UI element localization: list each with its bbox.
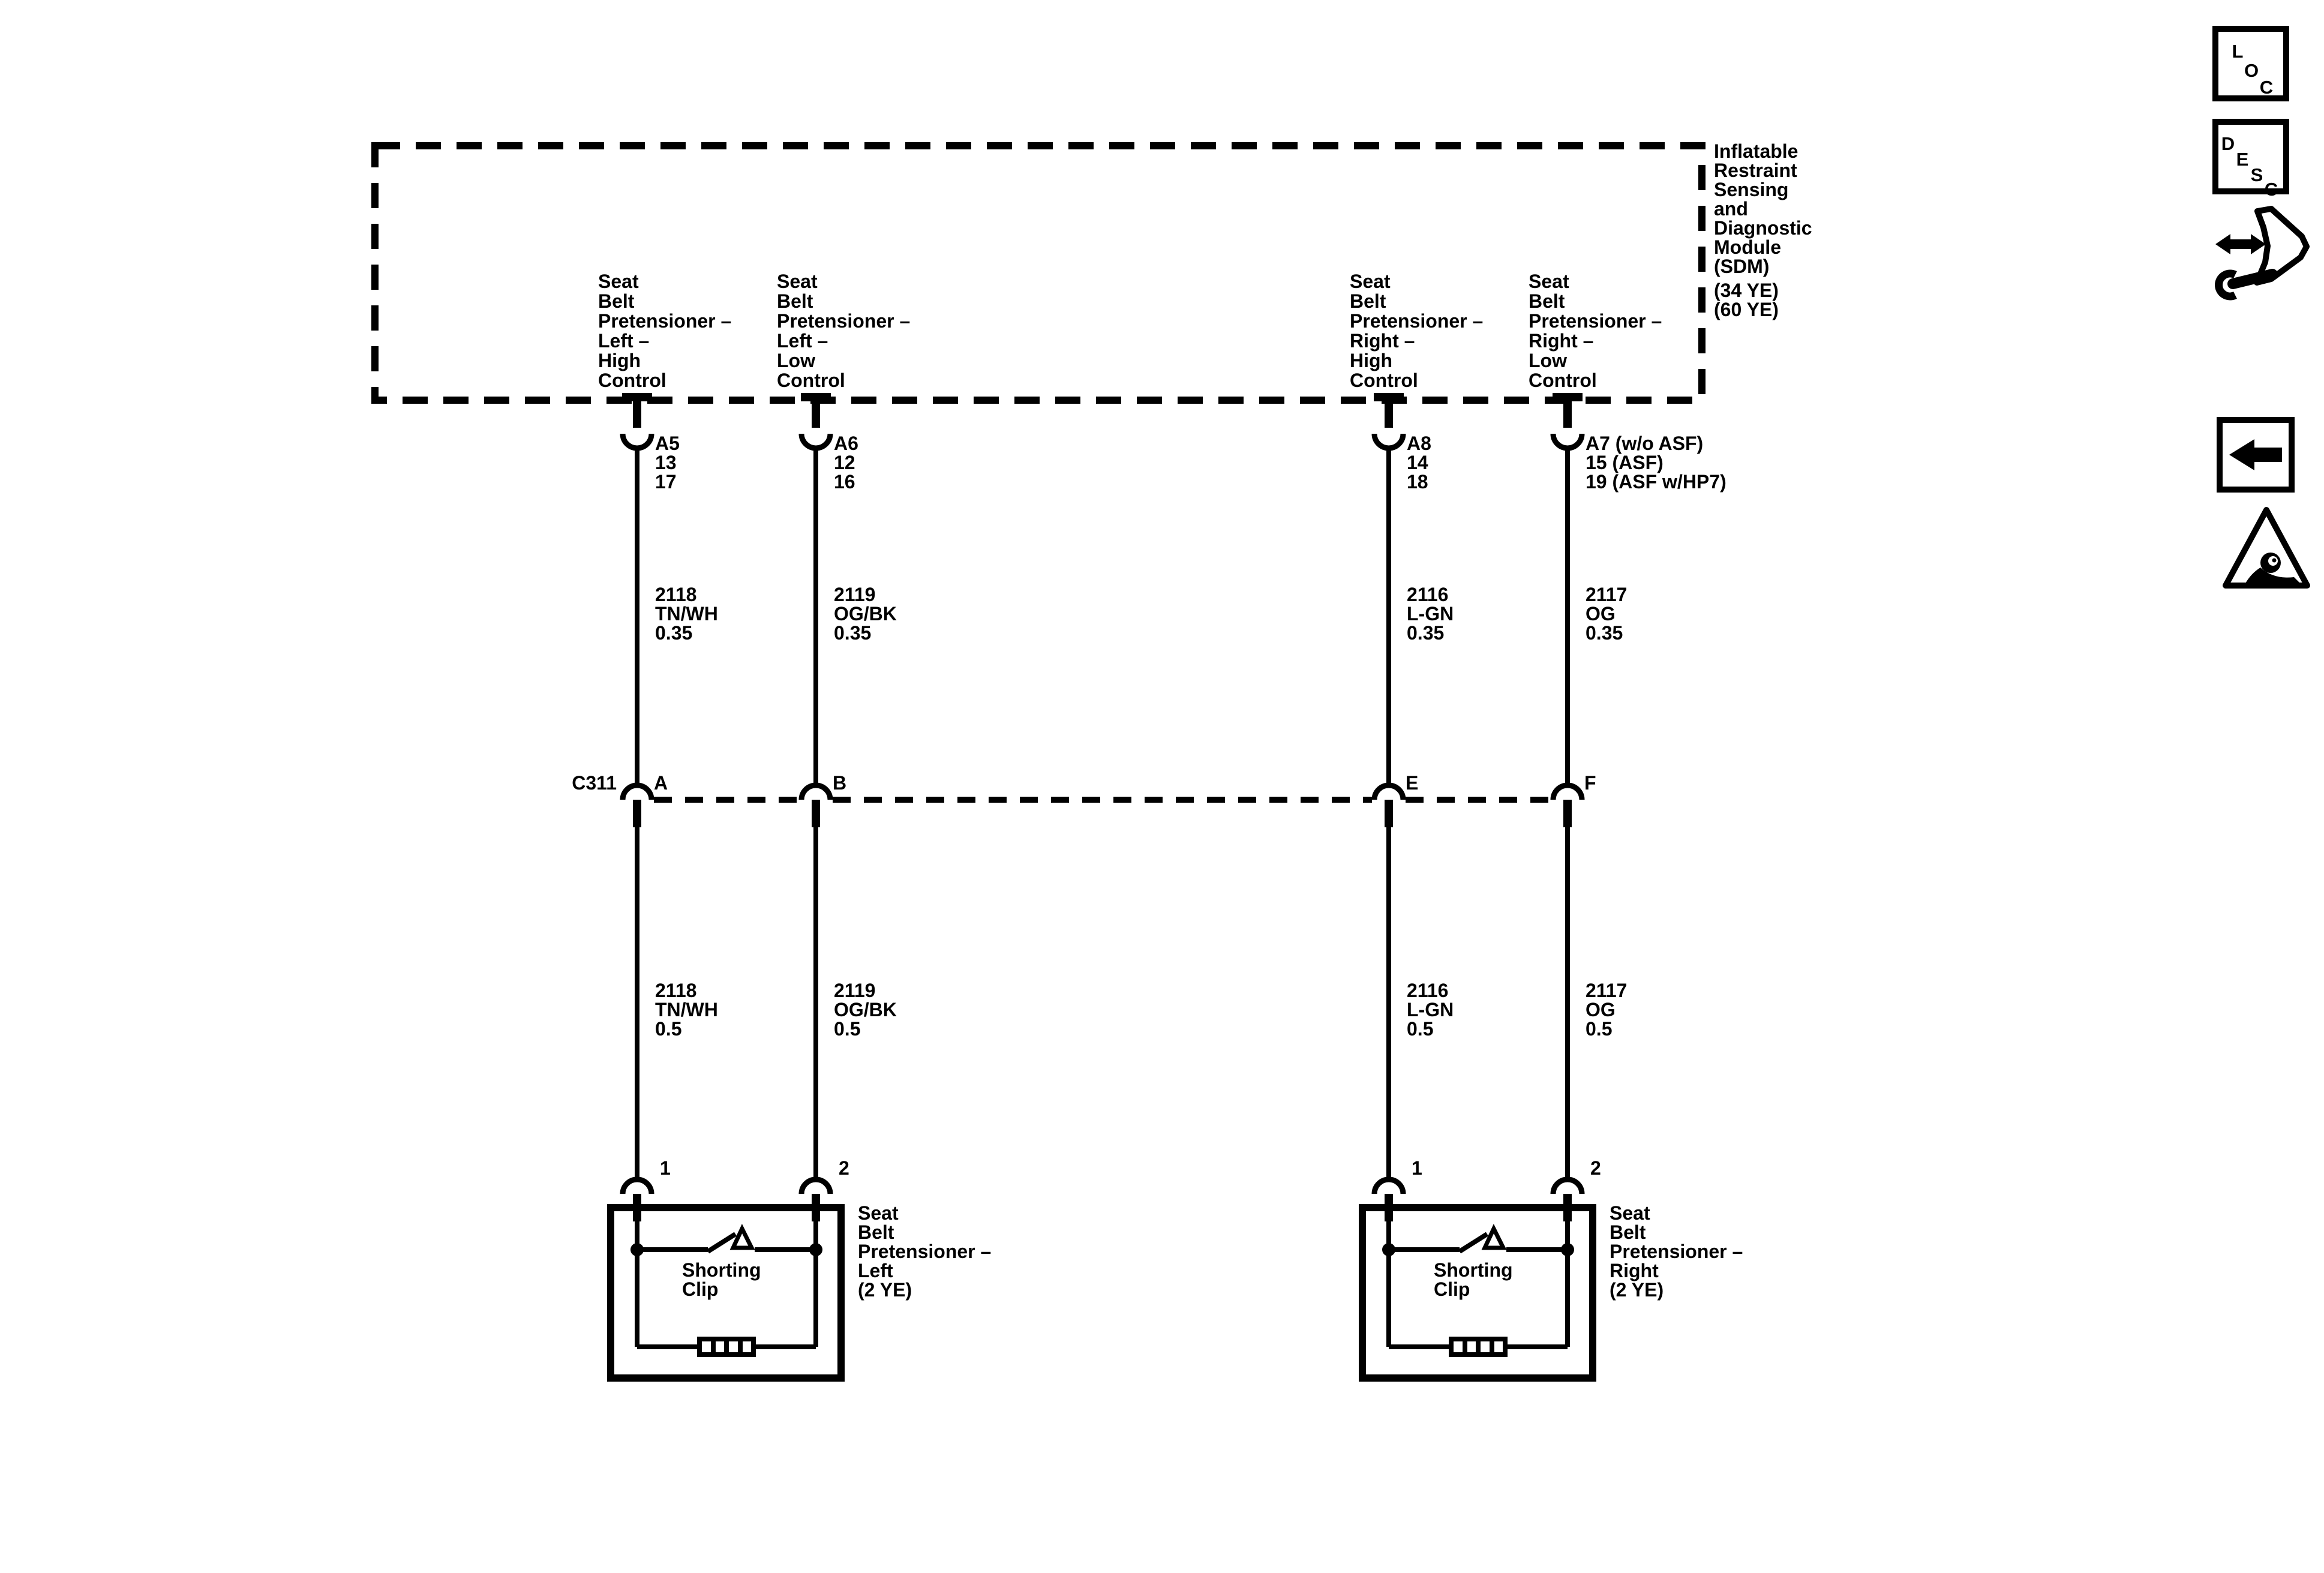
label-line: Seat (1529, 271, 1569, 292)
sdm-control-label-left-low: Seat Belt Pretensioner – Left – Low Cont… (777, 271, 910, 391)
component-terminal-icon (623, 1179, 651, 1194)
wire-color: OG (1586, 999, 1616, 1020)
circuit-number: 2117 (1586, 980, 1627, 1001)
label-line: High (1350, 350, 1392, 371)
pin-label: 19 (ASF w/HP7) (1586, 471, 1727, 493)
module-label-line: Module (1714, 236, 1781, 258)
module-label-line: (SDM) (1714, 256, 1769, 277)
sdm-pin-stub (1563, 393, 1572, 428)
wire-4-sbp-right-low (1553, 393, 1583, 1221)
c311-pin-stub (633, 800, 641, 827)
desc-letter: C (2265, 179, 2278, 200)
wire-size: 0.5 (1586, 1018, 1612, 1040)
wire-color: L-GN (1407, 999, 1454, 1020)
pin-label: 14 (1407, 452, 1428, 473)
switch-actuator-icon (1485, 1229, 1503, 1248)
loc-letter: C (2260, 77, 2273, 98)
circuit-number: 2116 (1407, 980, 1448, 1001)
desc-letter: E (2236, 149, 2249, 170)
c311-terminal-icon (801, 785, 830, 800)
pretensioner-right-box: Shorting Clip (1362, 1208, 1593, 1378)
sdm-pin-stub (1385, 393, 1393, 428)
connector-name: C311 (572, 772, 617, 794)
pretensioner-left-box: Shorting Clip (611, 1208, 841, 1378)
label-line: Seat (598, 271, 639, 292)
wire-color: OG (1586, 603, 1616, 625)
label-line: Belt (1529, 290, 1565, 312)
module-label-line: Diagnostic (1714, 217, 1812, 239)
pin-label: 13 (655, 452, 677, 473)
circuit-number: 2117 (1586, 584, 1627, 605)
label-line: Belt (777, 290, 813, 312)
pin-label: 16 (834, 471, 855, 493)
upper-wire-labels: 2118 TN/WH 0.35 2119 OG/BK 0.35 2116 L-G… (655, 584, 1627, 644)
repair-arrow-wrench-button[interactable] (2215, 209, 2307, 296)
wire-size: 0.5 (1407, 1018, 1433, 1040)
module-label-line: Sensing (1714, 179, 1788, 200)
pin-number: 2 (839, 1157, 849, 1179)
circuit-number: 2116 (1407, 584, 1448, 605)
loc-button[interactable]: L O C (2215, 29, 2286, 98)
pin-label: A8 (1407, 433, 1431, 454)
loc-letter: O (2244, 60, 2259, 81)
label-line: Right – (1529, 330, 1593, 352)
label-line: Left (858, 1260, 893, 1281)
switch-actuator-icon (733, 1229, 752, 1248)
wire-size: 0.35 (1586, 622, 1623, 644)
component-inner-label: Clip (1434, 1278, 1470, 1300)
sdm-pin-stub (812, 393, 820, 428)
wire-color: TN/WH (655, 603, 718, 625)
c311-pin-stub (1385, 800, 1393, 827)
female-terminal-icon (623, 434, 651, 448)
label-line: Control (1350, 370, 1418, 391)
module-label-line: (34 YE) (1714, 280, 1779, 301)
wire-size: 0.35 (655, 622, 692, 644)
label-line: High (598, 350, 641, 371)
label-line: Control (1529, 370, 1597, 391)
loc-letter: L (2232, 41, 2244, 62)
pin-label: 18 (1407, 471, 1428, 493)
label-line: Belt (858, 1221, 894, 1243)
label-line: Seat (1610, 1202, 1650, 1224)
female-terminal-icon (1553, 434, 1582, 448)
c311-terminal-icon (1374, 785, 1403, 800)
c311-pin-stub (812, 800, 820, 827)
pin-label: 17 (655, 471, 677, 493)
desc-letter: S (2251, 164, 2263, 185)
label-line: Seat (777, 271, 818, 292)
label-line: Left – (777, 330, 828, 352)
circuit-number: 2119 (834, 584, 875, 605)
label-line: Belt (1350, 290, 1386, 312)
label-line: Control (777, 370, 845, 391)
pin-label: A5 (655, 433, 680, 454)
wire-2-sbp-left-low (801, 393, 831, 1221)
connector-pin-letter: B (833, 772, 846, 794)
sdm-control-label-right-low: Seat Belt Pretensioner – Right – Low Con… (1529, 271, 1662, 391)
label-line: Pretensioner – (1610, 1241, 1743, 1262)
module-label-line: and (1714, 198, 1748, 220)
circuit-number: 2119 (834, 980, 875, 1001)
pin-label: 12 (834, 452, 855, 473)
label-line: Low (1529, 350, 1567, 371)
sdm-module-label: Inflatable Restraint Sensing and Diagnos… (1714, 140, 1812, 320)
connector-pin-letter: A (654, 772, 668, 794)
pretensioner-left-label: Seat Belt Pretensioner – Left (2 YE) (858, 1202, 991, 1301)
circuit-number: 2118 (655, 980, 696, 1001)
label-line: Pretensioner – (1529, 310, 1662, 332)
pin-label: A6 (834, 433, 858, 454)
wiring-diagram: Inflatable Restraint Sensing and Diagnos… (0, 0, 2324, 1573)
component-pin-numbers: 1 2 1 2 (660, 1157, 1601, 1179)
module-label-line: Restraint (1714, 160, 1797, 181)
airbag-swirl-core (2272, 559, 2277, 563)
srs-warning-icon (2226, 510, 2307, 586)
label-line: (2 YE) (858, 1279, 912, 1301)
label-line: Left – (598, 330, 649, 352)
desc-letter: D (2221, 133, 2235, 154)
pretensioner-right-label: Seat Belt Pretensioner – Right (2 YE) (1610, 1202, 1743, 1301)
wire-1-sbp-left-high (622, 393, 652, 1221)
pin-number: 1 (1412, 1157, 1422, 1179)
label-line: (2 YE) (1610, 1279, 1664, 1301)
double-arrow-icon (2215, 234, 2266, 254)
pin-label: A7 (w/o ASF) (1586, 433, 1703, 454)
c311-pin-stub (1563, 800, 1572, 827)
sdm-module-dashed-box (375, 146, 1702, 400)
label-line: Pretensioner – (858, 1241, 991, 1262)
wire-color: OG/BK (834, 603, 897, 625)
female-terminal-icon (1374, 434, 1403, 448)
label-line: Pretensioner – (1350, 310, 1483, 332)
label-line: Belt (1610, 1221, 1646, 1243)
wire-size: 0.5 (655, 1018, 681, 1040)
sdm-control-label-right-high: Seat Belt Pretensioner – Right – High Co… (1350, 271, 1483, 391)
component-inner-label: Shorting (1434, 1259, 1513, 1281)
label-line: Right – (1350, 330, 1415, 352)
component-terminal-icon (1374, 1179, 1403, 1194)
component-terminal-icon (801, 1179, 830, 1194)
wire-size: 0.35 (834, 622, 871, 644)
wire-color: TN/WH (655, 999, 718, 1020)
lower-wire-labels: 2118 TN/WH 0.5 2119 OG/BK 0.5 2116 L-GN … (655, 980, 1627, 1040)
connector-pin-letter: E (1406, 772, 1418, 794)
wire-size: 0.5 (834, 1018, 860, 1040)
module-label-line: Inflatable (1714, 140, 1798, 162)
pin-label: 15 (ASF) (1586, 452, 1664, 473)
label-line: Seat (858, 1202, 899, 1224)
wire-3-sbp-right-high (1374, 393, 1404, 1221)
wire-color: L-GN (1407, 603, 1454, 625)
female-terminal-icon (801, 434, 830, 448)
component-terminal-icon (1553, 1179, 1582, 1194)
back-button[interactable] (2220, 420, 2292, 490)
label-line: Low (777, 350, 815, 371)
desc-button[interactable]: D E S C (2215, 122, 2286, 200)
component-inner-label: Clip (682, 1278, 718, 1300)
sdm-pin-stub (633, 393, 641, 428)
label-line: Pretensioner – (598, 310, 731, 332)
connector-c311-labels: C311 A B E F (572, 772, 1596, 794)
label-line: Right (1610, 1260, 1659, 1281)
pin-number: 1 (660, 1157, 671, 1179)
label-line: Seat (1350, 271, 1391, 292)
wire-color: OG/BK (834, 999, 897, 1020)
pin-number: 2 (1590, 1157, 1601, 1179)
label-line: Belt (598, 290, 635, 312)
label-line: Pretensioner – (777, 310, 910, 332)
connector-pin-letter: F (1584, 772, 1596, 794)
wire-size: 0.35 (1407, 622, 1444, 644)
c311-terminal-icon (1553, 785, 1582, 800)
c311-terminal-icon (623, 785, 651, 800)
circuit-number: 2118 (655, 584, 696, 605)
component-inner-label: Shorting (682, 1259, 761, 1281)
sdm-control-label-left-high: Seat Belt Pretensioner – Left – High Con… (598, 271, 731, 391)
module-label-line: (60 YE) (1714, 299, 1779, 320)
label-line: Control (598, 370, 666, 391)
